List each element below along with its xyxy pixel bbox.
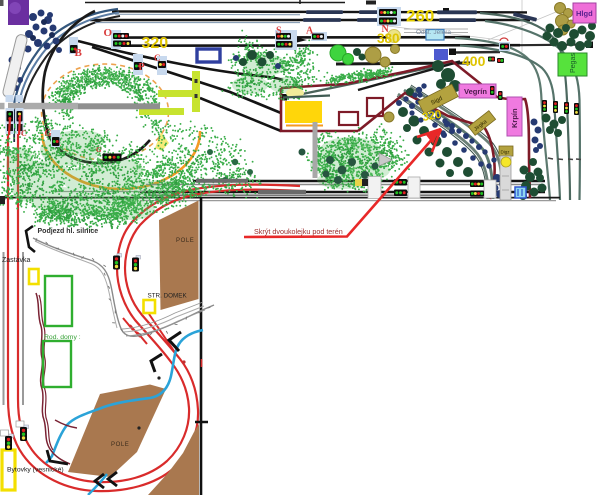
svg-text:POLE: POLE bbox=[176, 238, 194, 244]
svg-text:B: B bbox=[75, 47, 83, 59]
svg-text:Zastávka: Zastávka bbox=[2, 257, 31, 264]
svg-text:POLE: POLE bbox=[111, 442, 129, 448]
svg-text:Rod. domy :: Rod. domy : bbox=[44, 334, 81, 341]
svg-text:Digz: Digz bbox=[501, 150, 511, 155]
svg-text:C: C bbox=[21, 129, 27, 138]
svg-text:Hlgd: Hlgd bbox=[576, 9, 593, 18]
svg-text:S: S bbox=[276, 26, 282, 37]
svg-text:Pegas: Pegas bbox=[570, 53, 577, 73]
svg-text:P: P bbox=[139, 62, 145, 73]
svg-text:STR. DOMEK: STR. DOMEK bbox=[148, 293, 188, 300]
svg-text:Vegrín: Vegrín bbox=[464, 87, 487, 96]
svg-text:G: G bbox=[45, 128, 52, 138]
svg-text:320: 320 bbox=[142, 35, 169, 52]
svg-text:260: 260 bbox=[406, 7, 434, 26]
svg-text:Skrýt dvoukolejku pod terén: Skrýt dvoukolejku pod terén bbox=[254, 227, 343, 236]
svg-text:400: 400 bbox=[462, 53, 486, 69]
svg-text:Bytovky (vesnické): Bytovky (vesnické) bbox=[7, 467, 64, 474]
svg-text:Podjezd hl. silnice: Podjezd hl. silnice bbox=[38, 228, 99, 235]
svg-text:C: C bbox=[154, 53, 161, 63]
svg-text:380: 380 bbox=[377, 31, 400, 46]
svg-text:Krpín: Krpín bbox=[510, 108, 519, 128]
svg-text:G: G bbox=[96, 146, 102, 154]
svg-text:A: A bbox=[306, 26, 314, 37]
svg-text:O: O bbox=[104, 27, 113, 39]
svg-text:Odst. Jelera: Odst. Jelera bbox=[416, 29, 451, 36]
